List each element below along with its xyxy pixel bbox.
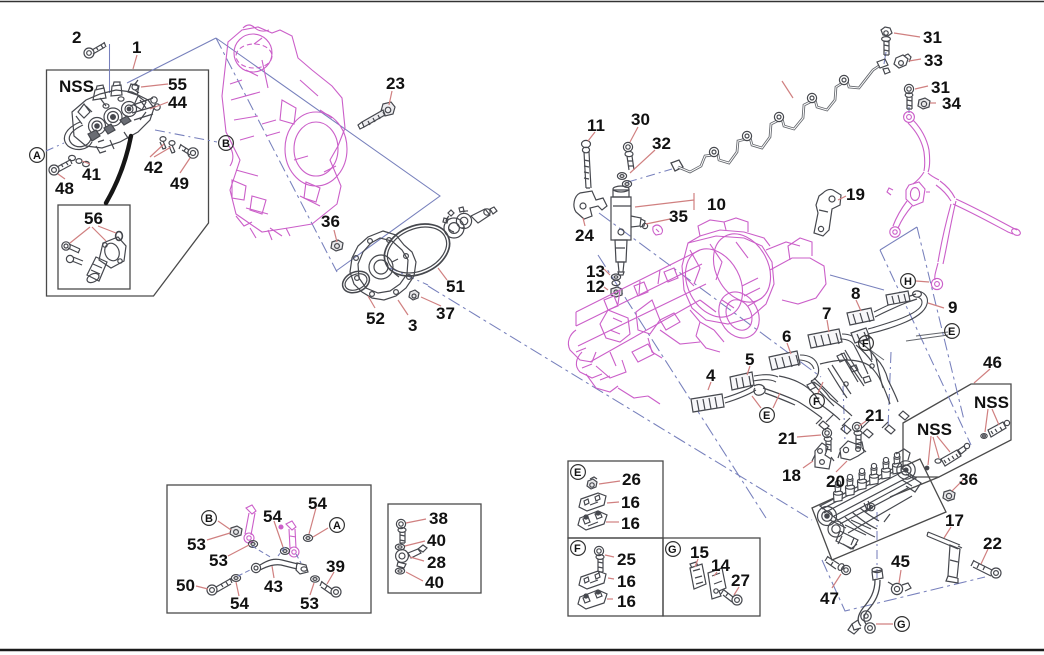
svg-text:A: A [33,150,41,162]
svg-text:40: 40 [425,573,444,592]
svg-text:11: 11 [587,116,605,135]
svg-text:51: 51 [446,277,465,296]
svg-text:NSS: NSS [974,393,1009,412]
svg-text:21: 21 [778,429,797,448]
svg-text:20: 20 [826,472,845,491]
svg-text:15: 15 [690,543,709,562]
svg-text:16: 16 [617,572,636,591]
svg-text:F: F [574,543,581,555]
svg-text:55: 55 [168,75,187,94]
svg-text:9: 9 [948,298,957,317]
svg-text:40: 40 [427,531,446,550]
svg-text:18: 18 [782,466,801,485]
svg-text:16: 16 [621,514,640,533]
svg-text:2: 2 [72,28,81,47]
svg-text:54: 54 [230,594,249,613]
svg-text:46: 46 [983,353,1002,372]
svg-text:22: 22 [983,534,1002,553]
svg-text:43: 43 [264,577,283,596]
svg-text:3: 3 [408,316,417,335]
svg-text:31: 31 [923,28,942,47]
svg-text:7: 7 [822,304,831,323]
svg-text:1: 1 [132,38,141,57]
svg-text:28: 28 [427,553,446,572]
svg-text:48: 48 [55,179,74,198]
svg-text:39: 39 [326,557,345,576]
svg-text:50: 50 [176,576,195,595]
svg-text:NSS: NSS [59,77,94,96]
svg-text:47: 47 [820,589,839,608]
svg-text:G: G [897,619,906,631]
svg-text:49: 49 [170,174,189,193]
svg-text:17: 17 [945,511,964,530]
svg-text:30: 30 [631,110,650,129]
svg-text:14: 14 [711,556,730,575]
svg-text:19: 19 [846,185,865,204]
svg-text:36: 36 [959,470,978,489]
svg-text:41: 41 [82,165,101,184]
svg-text:26: 26 [622,470,641,489]
svg-text:54: 54 [263,507,282,526]
svg-text:44: 44 [168,93,187,112]
svg-text:10: 10 [707,195,726,214]
svg-text:4: 4 [706,366,716,385]
svg-text:B: B [205,513,213,525]
svg-text:E: E [948,326,955,338]
svg-text:6: 6 [782,327,791,346]
svg-text:52: 52 [366,309,385,328]
svg-text:16: 16 [621,493,640,512]
svg-text:54: 54 [308,494,327,513]
svg-text:G: G [668,544,677,556]
svg-text:27: 27 [731,571,750,590]
svg-text:5: 5 [745,350,754,369]
svg-text:16: 16 [617,592,636,611]
svg-text:35: 35 [669,207,688,226]
svg-text:F: F [862,338,869,350]
svg-text:36: 36 [321,212,340,231]
svg-text:32: 32 [652,134,671,153]
svg-text:21: 21 [865,406,884,425]
svg-text:F: F [813,396,820,408]
svg-text:12: 12 [586,277,605,296]
svg-text:45: 45 [891,552,910,571]
svg-text:B: B [222,138,230,150]
svg-text:53: 53 [300,594,319,613]
svg-text:56: 56 [84,209,103,228]
svg-text:A: A [333,520,341,532]
svg-text:E: E [763,410,770,422]
svg-text:H: H [904,276,912,288]
svg-text:24: 24 [575,226,594,245]
svg-text:25: 25 [617,550,636,569]
svg-text:E: E [574,467,581,479]
svg-text:8: 8 [851,284,860,303]
svg-text:33: 33 [924,51,943,70]
svg-text:38: 38 [429,509,448,528]
svg-text:37: 37 [436,304,455,323]
svg-text:23: 23 [386,74,405,93]
svg-text:NSS: NSS [917,420,952,439]
svg-text:53: 53 [187,535,206,554]
svg-text:42: 42 [144,158,163,177]
svg-text:34: 34 [942,94,961,113]
svg-text:53: 53 [209,551,228,570]
